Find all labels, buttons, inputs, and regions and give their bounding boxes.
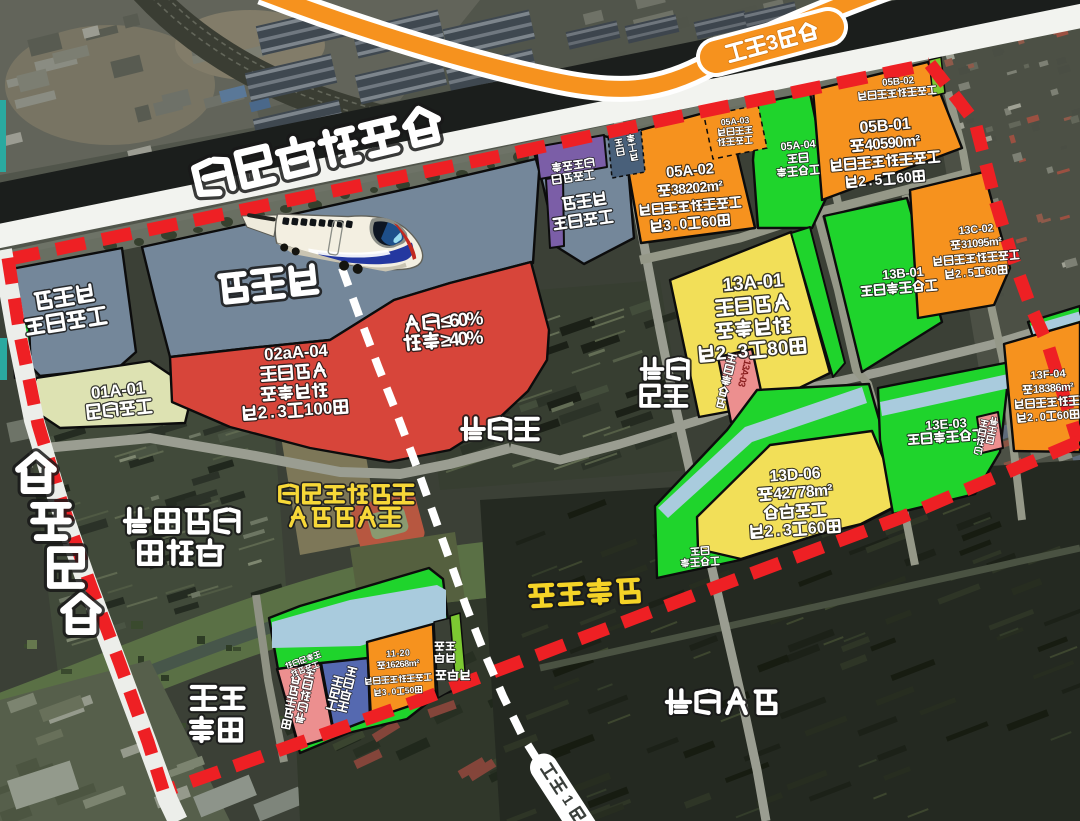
- svg-text:60: 60: [1056, 409, 1069, 422]
- svg-text:60: 60: [700, 213, 717, 230]
- svg-text:3.0: 3.0: [663, 215, 689, 233]
- svg-text:2.3: 2.3: [257, 402, 287, 423]
- svg-text:60: 60: [984, 265, 997, 278]
- svg-text:80: 80: [766, 338, 789, 361]
- svg-text:2.3: 2.3: [764, 522, 793, 541]
- svg-text:11-20: 11-20: [386, 647, 410, 659]
- svg-text:13F-04: 13F-04: [1030, 368, 1067, 382]
- svg-text:≥40%: ≥40%: [440, 327, 485, 352]
- svg-text:100: 100: [303, 398, 333, 419]
- svg-text:50: 50: [404, 685, 414, 696]
- svg-text:13E-03: 13E-03: [925, 415, 968, 433]
- svg-text:60: 60: [895, 169, 912, 186]
- svg-text:3.0: 3.0: [381, 686, 397, 697]
- svg-text:2.0: 2.0: [1027, 411, 1047, 424]
- svg-text:2.5: 2.5: [955, 267, 975, 281]
- svg-text:13D-06: 13D-06: [769, 465, 821, 486]
- svg-text:60: 60: [807, 520, 826, 538]
- svg-text:2.5: 2.5: [858, 171, 884, 189]
